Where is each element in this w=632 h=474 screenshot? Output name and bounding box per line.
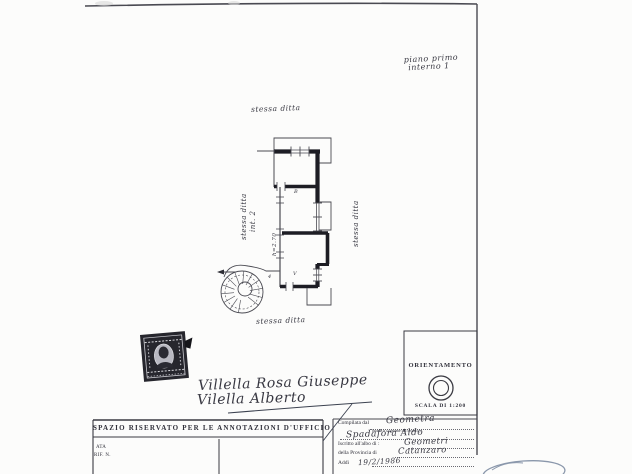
room-label-b: B	[294, 189, 298, 195]
form-dotted-line	[372, 465, 474, 467]
orientation-title: ORIENTAMENTO	[404, 362, 477, 369]
orientation-circle-inner	[434, 381, 449, 396]
form-date-label: Addì	[338, 460, 349, 466]
plan-label-right: stessa ditta	[352, 200, 360, 247]
form-register-label: Iscritto all'albo di :	[338, 441, 379, 447]
annotations-left-line1: ATA	[96, 445, 106, 450]
form-compiled-by-label: Compilata dal	[338, 420, 369, 426]
scan-smudge	[228, 1, 240, 5]
plan-label-left-line2: int. 2	[249, 211, 257, 232]
room-label-v: V	[293, 271, 297, 277]
orientation-circle-outer	[429, 376, 453, 400]
annotations-left-line2: RIF. N.	[94, 453, 111, 458]
plan-label-top: stessa ditta	[251, 103, 301, 114]
page-note-handwritten: piano primo interno 1	[404, 54, 459, 73]
scan-smudge	[95, 1, 113, 6]
balcony-bottom-outline	[307, 288, 331, 305]
plan-height-note: h=2.70	[272, 233, 278, 256]
revenue-stamp	[140, 330, 196, 381]
balcony-right-outline	[319, 202, 331, 230]
plan-label-bottom: stessa ditta	[256, 315, 306, 326]
scanned-cadastral-plan-page: piano primo interno 1 stessa ditta stess…	[0, 0, 632, 474]
top-border-line	[85, 3, 477, 6]
orientation-scale: SCALA DI 1:200	[404, 403, 477, 409]
owner-signature-2: Vilella Alberto	[197, 390, 306, 409]
door-number: 4	[268, 274, 272, 280]
stamp-scribble	[482, 458, 565, 474]
plan-label-left-line1: stessa ditta	[240, 193, 248, 240]
form-dotted-line	[395, 456, 474, 458]
plan-drawing	[0, 0, 632, 474]
form-province-label: della Provincia di	[338, 450, 377, 456]
entry-arrow-icon	[217, 270, 236, 275]
annotations-box-header: SPAZIO RISERVATO PER LE ANNOTAZIONI D'UF…	[93, 424, 323, 432]
